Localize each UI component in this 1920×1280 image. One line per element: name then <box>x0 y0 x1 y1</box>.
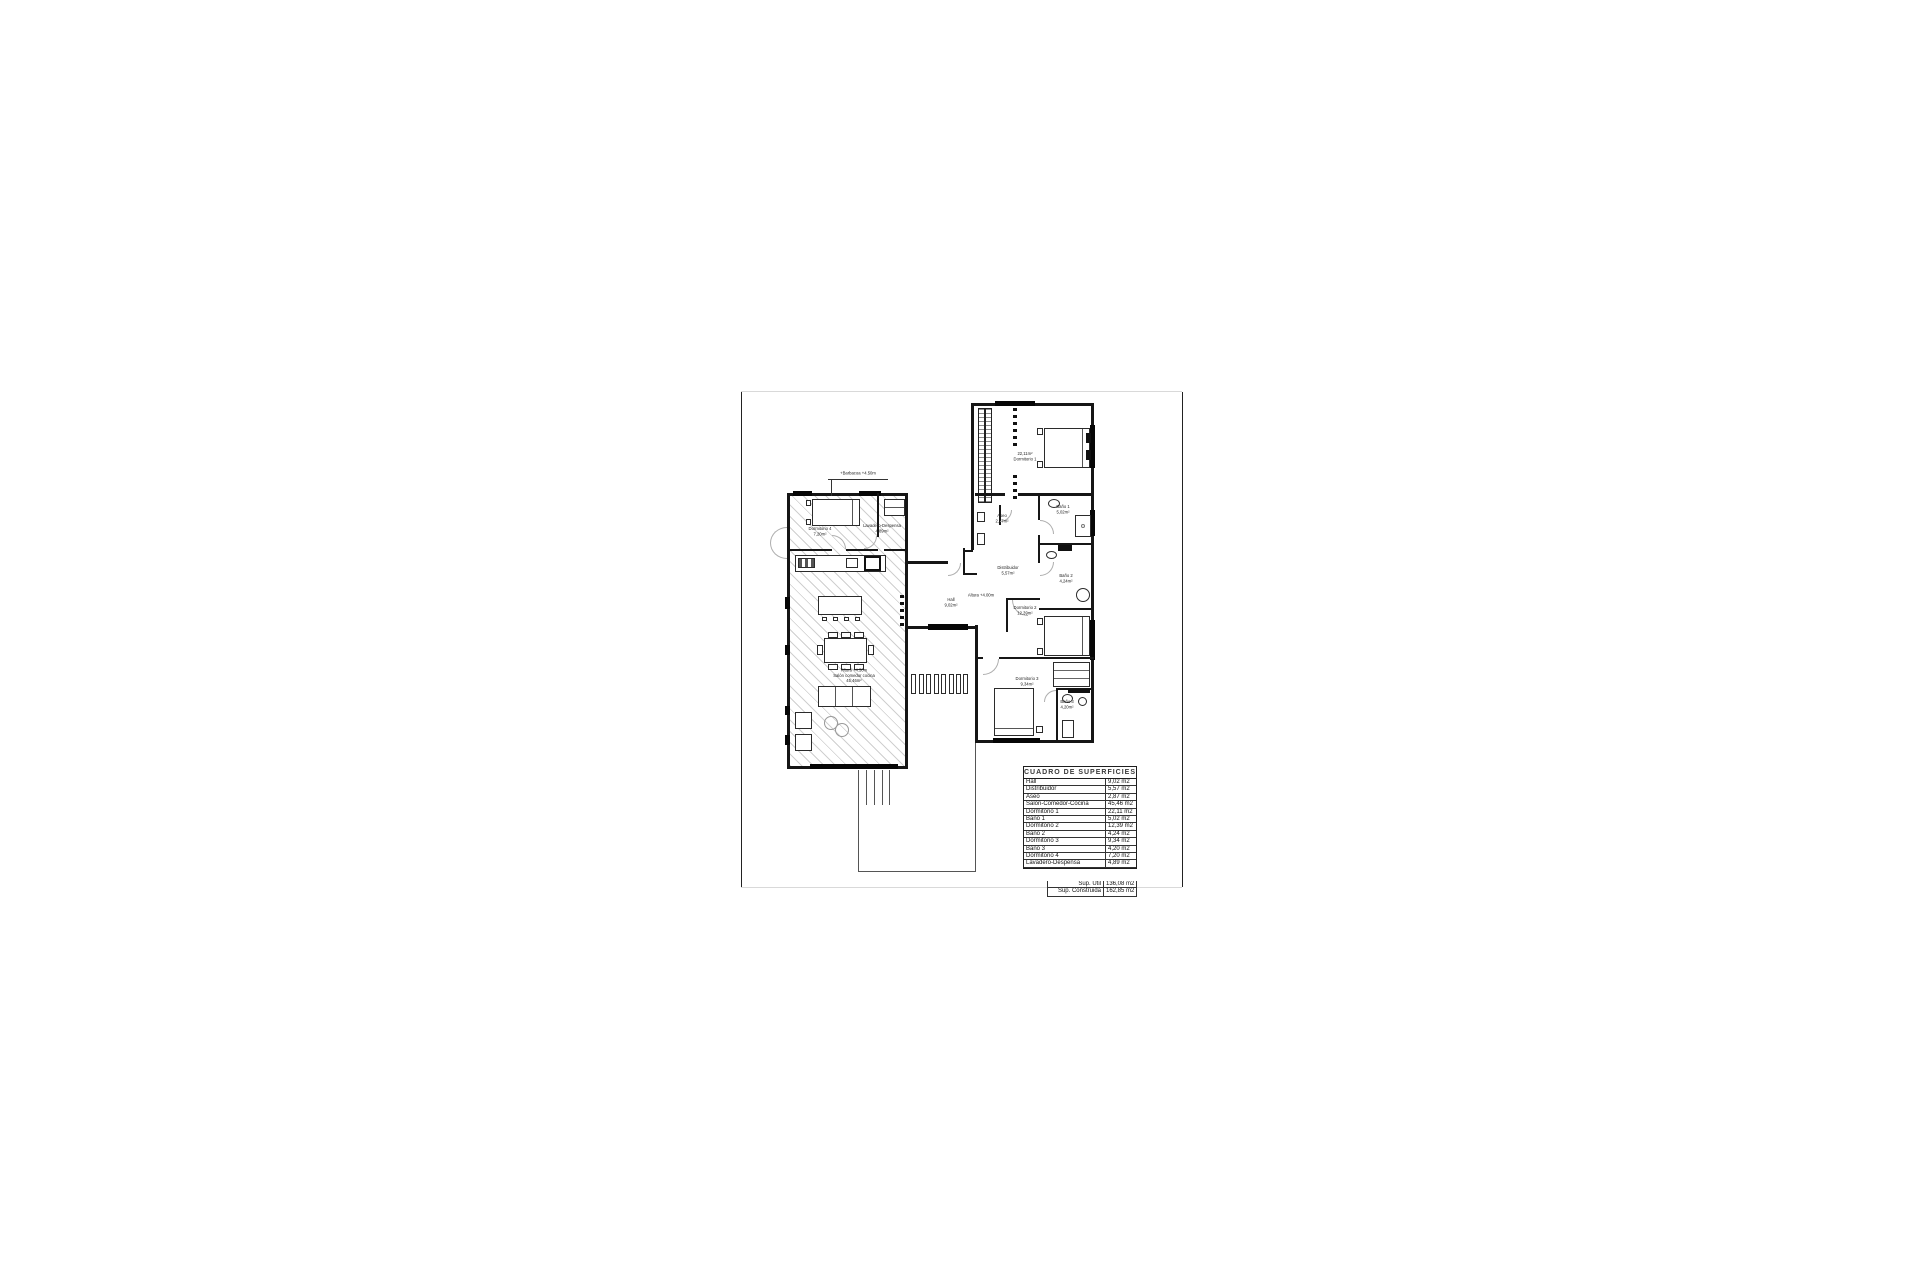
dining-table <box>824 638 867 663</box>
table-cell-value: 2,87 m2 <box>1106 794 1136 800</box>
floor-plan-sheet: +Barbacoa +4.50m <box>0 0 1920 1280</box>
cabinet-line <box>885 507 904 508</box>
bed <box>1044 616 1090 656</box>
table-cell-name: Baño 3 <box>1024 846 1106 852</box>
table-cell-value: 9,02 m2 <box>1106 779 1136 785</box>
stool <box>844 617 849 621</box>
pergola-slat <box>934 674 939 694</box>
window <box>785 706 790 715</box>
sliding-door <box>928 624 968 630</box>
pergola-slat <box>949 674 954 694</box>
table-row: Distribuidor5,57 m2 <box>1024 786 1136 793</box>
coffee-table <box>835 723 849 737</box>
column-markers <box>900 595 904 628</box>
wall <box>1038 495 1040 520</box>
wardrobe <box>985 408 992 503</box>
wall <box>971 403 974 550</box>
window <box>793 491 812 496</box>
window <box>993 738 1040 743</box>
armchair <box>795 734 812 751</box>
chair <box>817 645 823 655</box>
wall <box>999 657 1094 659</box>
step-line <box>858 770 859 805</box>
door-arc <box>1040 520 1054 534</box>
chair <box>868 645 874 655</box>
pergola-slat <box>941 674 946 694</box>
table-row: Dormitorio 122,11 m2 <box>1024 809 1136 816</box>
room-label: Dormitorio 212,39m² <box>1014 606 1037 617</box>
room-label: Altura +4.50mSalón comedor cocina45,46m² <box>833 668 875 684</box>
room-label: Distribuidor5,57m² <box>997 566 1018 577</box>
wall <box>1006 598 1008 632</box>
pergola-slat <box>919 674 924 694</box>
wall <box>884 549 905 551</box>
table-row: Sup. Útil136,08 m2 <box>1048 881 1136 888</box>
wall <box>908 561 948 564</box>
window <box>785 735 790 745</box>
window <box>995 401 1035 406</box>
callout-underline <box>828 479 888 480</box>
table-cell-value: 5,57 m2 <box>1106 786 1136 792</box>
table-row: Aseo2,87 m2 <box>1024 794 1136 801</box>
step-line <box>874 770 875 805</box>
headboard <box>1086 433 1091 443</box>
chair <box>854 632 864 638</box>
table-cell-value: 136,08 m2 <box>1104 881 1136 887</box>
wall <box>846 549 878 551</box>
vanity <box>1058 545 1072 551</box>
table-cell-name: Dormitorio 2 <box>1024 823 1106 829</box>
shower <box>1062 720 1074 738</box>
surface-table: CUADRO DE SUPERFICIES Hall9,02 m2Distrib… <box>1023 766 1137 869</box>
sink <box>1078 697 1087 706</box>
table-cell-name: Distribuidor <box>1024 786 1106 792</box>
room-label: 22,11m²Dormitorio 1 <box>1014 452 1037 463</box>
sofa-seat-line <box>835 687 836 706</box>
door-arc <box>770 543 787 559</box>
sink <box>977 533 985 545</box>
nightstand <box>1037 461 1043 468</box>
surface-table-rows: Hall9,02 m2Distribuidor5,57 m2Aseo2,87 m… <box>1024 779 1136 868</box>
table-row: Baño 15,02 m2 <box>1024 816 1136 823</box>
wall <box>1056 688 1058 742</box>
sliding-door <box>810 764 898 769</box>
room-label: Lavadero-Despensa4,89m² <box>863 524 901 535</box>
door-arc <box>948 563 961 576</box>
step-line <box>866 770 867 805</box>
room-label: Hall9,02m² <box>944 598 957 609</box>
window <box>1090 620 1095 660</box>
callout-leader <box>831 479 832 496</box>
toilet <box>977 512 985 522</box>
window <box>785 597 790 609</box>
nightstand <box>1037 618 1043 625</box>
door-arc <box>770 527 787 543</box>
bed <box>1044 428 1090 468</box>
nightstand <box>806 500 811 506</box>
table-cell-name: Aseo <box>1024 794 1106 800</box>
pergola-slat <box>956 674 961 694</box>
table-cell-value: 12,39 m2 <box>1106 823 1136 829</box>
wall <box>963 573 977 575</box>
table-cell-value: 22,11 m2 <box>1106 809 1136 815</box>
table-row: Baño 34,20 m2 <box>1024 846 1136 853</box>
table-row: Lavadero-Despensa4,89 m2 <box>1024 860 1136 867</box>
table-cell-name: Salón-Comedor-Cocina <box>1024 801 1106 807</box>
table-cell-value: 45,46 m2 <box>1106 801 1136 807</box>
table-row: Salón-Comedor-Cocina45,46 m2 <box>1024 801 1136 808</box>
sheet-top-edge <box>741 391 1182 392</box>
pergola-slat <box>963 674 968 694</box>
door-arc <box>1040 562 1054 576</box>
kitchen-island <box>818 596 862 615</box>
table-row: Dormitorio 39,34 m2 <box>1024 838 1136 845</box>
nightstand <box>1036 726 1043 733</box>
table-cell-name: Dormitorio 1 <box>1024 809 1106 815</box>
table-cell-name: Sup. Útil <box>1048 881 1104 887</box>
table-row: Dormitorio 212,39 m2 <box>1024 823 1136 830</box>
kitchen-appliance <box>864 556 881 571</box>
sheet-right-edge <box>1182 392 1183 887</box>
table-row: Baño 24,24 m2 <box>1024 831 1136 838</box>
table-cell-name: Baño 1 <box>1024 816 1106 822</box>
nightstand <box>1037 428 1043 435</box>
table-cell-name: Lavadero-Despensa <box>1024 860 1106 866</box>
terrace-edge <box>858 805 859 871</box>
closet-front <box>1068 689 1090 693</box>
terrace-edge <box>975 741 976 871</box>
toilet <box>1046 551 1057 559</box>
wall <box>789 549 832 551</box>
step-line <box>882 770 883 805</box>
table-cell-name: Baño 2 <box>1024 831 1106 837</box>
step-line <box>889 770 890 805</box>
chair <box>841 632 851 638</box>
stool <box>855 617 860 621</box>
wall <box>963 548 965 575</box>
room-label: Dormitorio 47,20m² <box>809 527 832 538</box>
wall <box>1038 545 1040 563</box>
shower <box>1076 588 1090 602</box>
window <box>1090 425 1095 468</box>
room-label: Baño 15,02m² <box>1056 505 1069 516</box>
stove-burners <box>798 558 815 568</box>
table-cell-value: 162,85 m2 <box>1104 888 1136 895</box>
room-label: Dormitorio 39,34m² <box>1016 677 1039 688</box>
sheet-left-edge <box>741 392 742 887</box>
surface-table-summary: Sup. Útil136,08 m2Sup. Construida162,85 … <box>1047 881 1137 897</box>
room-label: Baño 34,20m² <box>1060 700 1073 711</box>
terrace-edge <box>858 871 976 872</box>
pergola-slat <box>926 674 931 694</box>
table-cell-value: 5,02 m2 <box>1106 816 1136 822</box>
room-label: Baño 24,24m² <box>1059 574 1072 585</box>
table-cell-value: 4,20 m2 <box>1106 846 1136 852</box>
wall <box>975 657 983 659</box>
column-markers <box>1013 475 1017 503</box>
table-cell-value: 7,20 m2 <box>1106 853 1136 859</box>
table-cell-name: Sup. Construida <box>1048 888 1104 895</box>
stool <box>833 617 838 621</box>
bed-pillow-line <box>852 500 853 525</box>
wall <box>975 625 978 742</box>
callout-text: +Barbacoa +4.50m <box>840 471 876 476</box>
wall <box>1018 493 1094 496</box>
window <box>785 645 790 655</box>
nightstand <box>1037 648 1043 655</box>
table-row: Sup. Construida162,85 m2 <box>1048 888 1136 895</box>
chair <box>828 632 838 638</box>
sofa-seat-line <box>852 687 853 706</box>
column-markers <box>1013 408 1017 448</box>
door-arc <box>983 659 999 675</box>
pergola-slat <box>911 674 916 694</box>
wall <box>1039 608 1094 610</box>
surface-table-title: CUADRO DE SUPERFICIES <box>1024 767 1136 779</box>
armchair <box>795 712 812 729</box>
bed-pillow-line <box>995 728 1033 729</box>
table-row: Dormitorio 47,20 m2 <box>1024 853 1136 860</box>
sofa <box>818 686 871 707</box>
closet <box>1053 662 1090 687</box>
bed-pillow-line <box>1082 429 1083 467</box>
bed-pillow-line <box>1082 617 1083 655</box>
table-cell-value: 9,34 m2 <box>1106 838 1136 844</box>
table-cell-name: Dormitorio 3 <box>1024 838 1106 844</box>
wall <box>905 493 908 769</box>
kitchen-sink <box>846 558 858 568</box>
stool <box>822 617 827 621</box>
table-cell-value: 4,89 m2 <box>1106 860 1136 866</box>
wardrobe <box>978 408 985 503</box>
door-arc <box>1044 690 1056 702</box>
wall <box>787 493 790 769</box>
table-row: Hall9,02 m2 <box>1024 779 1136 786</box>
nightstand <box>806 519 811 525</box>
wall <box>975 493 1005 496</box>
headboard <box>1086 450 1091 460</box>
room-label: Aseo2,87m² <box>995 514 1008 525</box>
table-cell-name: Dormitorio 4 <box>1024 853 1106 859</box>
height-label: Altura +4.00m <box>968 593 994 598</box>
table-cell-name: Hall <box>1024 779 1106 785</box>
shower-drain <box>1081 524 1085 528</box>
table-cell-value: 4,24 m2 <box>1106 831 1136 837</box>
